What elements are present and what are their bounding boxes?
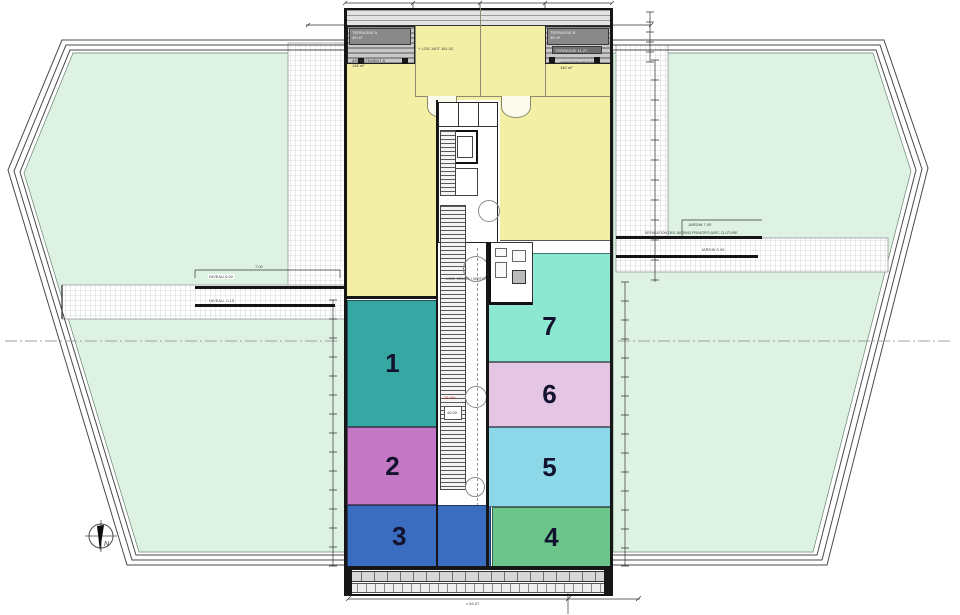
elevator-cab xyxy=(457,136,473,158)
fixture xyxy=(495,262,507,278)
core-divider xyxy=(438,126,498,127)
right-dim-bar-2 xyxy=(616,255,758,258)
zone-4: 4 xyxy=(492,507,611,568)
bottom-dim-label: ≈ 54.07 xyxy=(466,601,479,606)
partition-line xyxy=(480,8,481,96)
fixture xyxy=(512,270,526,284)
facade-louvers-row2 xyxy=(347,583,611,593)
floor-plan-canvas: N TERRASSE A40 m² TERRASSE B36 m² TERRAS… xyxy=(0,0,960,615)
entry-arc xyxy=(501,96,531,118)
zone-2: 2 xyxy=(347,427,438,505)
zone-1-number: 1 xyxy=(385,348,399,379)
zone-5-number: 5 xyxy=(542,452,556,483)
core-wall-left xyxy=(436,100,438,568)
level-note: ±0.00 xyxy=(447,410,457,415)
north-compass: N xyxy=(85,520,117,552)
core-wall-right xyxy=(486,242,489,568)
zone-6-number: 6 xyxy=(542,379,556,410)
terrace-a-label: TERRASSE A40 m² xyxy=(349,28,411,45)
pillar xyxy=(594,57,600,63)
outer-wall-right xyxy=(610,8,613,596)
fixture xyxy=(512,250,526,262)
apartment-a-label: APPARTEMENT A146 m² xyxy=(352,58,385,68)
right-dim-2: JARDIN 5.00 xyxy=(700,247,725,252)
apartment-b-label: APPARTEMENT B140 m² xyxy=(560,60,593,70)
outer-wall-left xyxy=(344,8,347,596)
zone-3: 3 xyxy=(347,505,491,568)
door-swing xyxy=(478,200,500,222)
terrace-b-label: TERRASSE B36 m² xyxy=(547,28,609,45)
partition-line xyxy=(415,26,416,96)
right-dim-bar-1 xyxy=(616,236,762,239)
zone-5: 5 xyxy=(488,427,611,507)
left-dim-2: NIVEAU -0.15 xyxy=(208,298,235,303)
left-dim-bar-1 xyxy=(195,286,345,289)
roof-edge-band xyxy=(345,8,613,26)
fixture xyxy=(495,248,507,257)
zone-7-number: 7 xyxy=(542,311,556,342)
zone-6: 6 xyxy=(488,362,611,427)
core-divider xyxy=(458,102,459,126)
ramp-slope-note: 15.4% xyxy=(444,395,455,400)
core-divider xyxy=(478,102,479,126)
stair-flight xyxy=(440,130,456,196)
log-note: + LOG 1407 161.02 xyxy=(418,46,453,51)
facade-baseline xyxy=(345,594,613,596)
apartment-b-field xyxy=(500,100,611,240)
zone-2-number: 2 xyxy=(385,451,399,482)
zone-3-number: 3 xyxy=(392,521,406,552)
ramp xyxy=(440,205,466,490)
pillar xyxy=(549,57,555,63)
pillar xyxy=(402,58,408,64)
left-dim-bar-2 xyxy=(195,304,335,307)
zone-4-number: 4 xyxy=(544,522,558,553)
facade-post xyxy=(344,566,352,594)
facade-louvers-row1 xyxy=(347,571,611,582)
right-dim-1: JARDIN 7.00 xyxy=(688,222,711,227)
left-bracket-value: 7.00 xyxy=(255,264,263,269)
facade-wall xyxy=(345,566,613,570)
right-separation-note: SEPARATION DES JARDINS PRIVATIFS AVEC CL… xyxy=(645,231,737,235)
door-swing xyxy=(465,477,485,497)
apartment-a-field xyxy=(347,100,437,297)
zone-1: 1 xyxy=(347,300,438,427)
door-swing xyxy=(465,386,487,408)
left-dim-1: NIVEAU 0.00 xyxy=(208,274,234,279)
facade-post xyxy=(604,566,613,594)
zone-wall xyxy=(347,296,437,299)
bike-note: LOC. VELOS / MOTOS xyxy=(446,276,488,281)
terrace-b-sublabel: TERRASSE 11.27 xyxy=(552,46,602,54)
